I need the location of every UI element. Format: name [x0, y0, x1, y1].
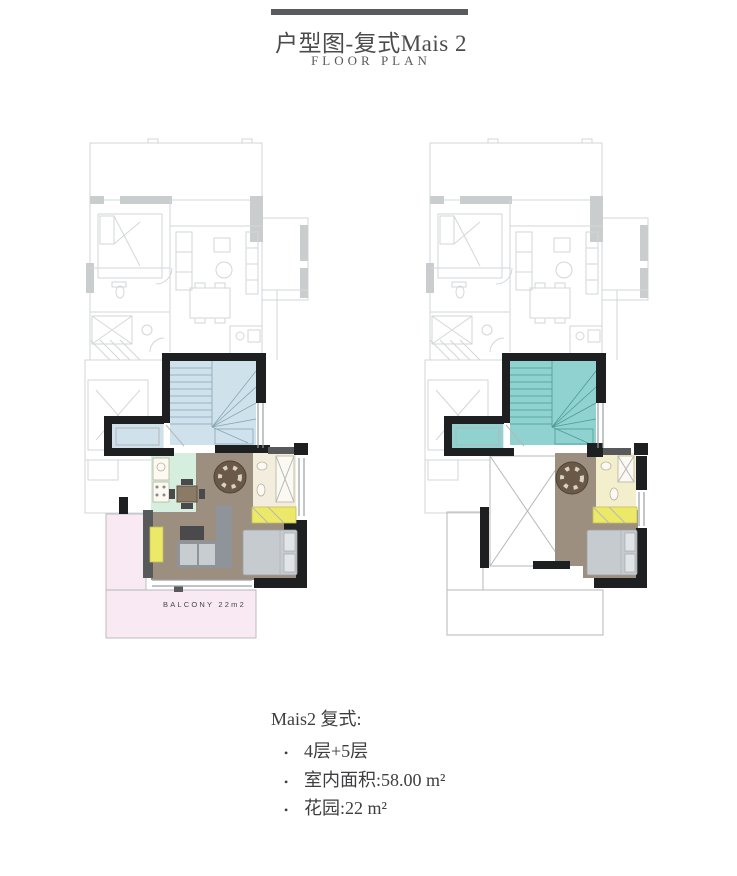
- wardrobe: [593, 507, 637, 523]
- note-item: • 室内面积:58.00 m²: [271, 767, 445, 796]
- bed: [243, 530, 297, 575]
- bed: [587, 530, 637, 575]
- right-plan: [444, 353, 648, 635]
- note-text: 4层+5层: [304, 738, 368, 765]
- bullet-icon: •: [271, 797, 304, 824]
- wardrobe: [252, 507, 296, 523]
- notes: Mais2 复式: • 4层+5层 • 室内面积:58.00 m² • 花园:2…: [271, 705, 445, 824]
- balcony-label: BALCONY 22m2: [163, 600, 246, 609]
- note-item: • 4层+5层: [271, 738, 445, 767]
- void-opening: [490, 456, 565, 566]
- note-text: 花园:22 m²: [304, 795, 387, 822]
- balcony-wall-stub: [174, 586, 183, 592]
- note-item: • 花园:22 m²: [271, 795, 445, 824]
- bullet-icon: •: [271, 740, 304, 767]
- note-text: 室内面积:58.00 m²: [304, 767, 445, 794]
- coffee-table: [180, 526, 204, 540]
- kitchen-counter: [153, 458, 169, 502]
- notes-title: Mais2 复式:: [271, 705, 445, 731]
- bullet-icon: •: [271, 769, 304, 796]
- cabinet: [150, 527, 163, 562]
